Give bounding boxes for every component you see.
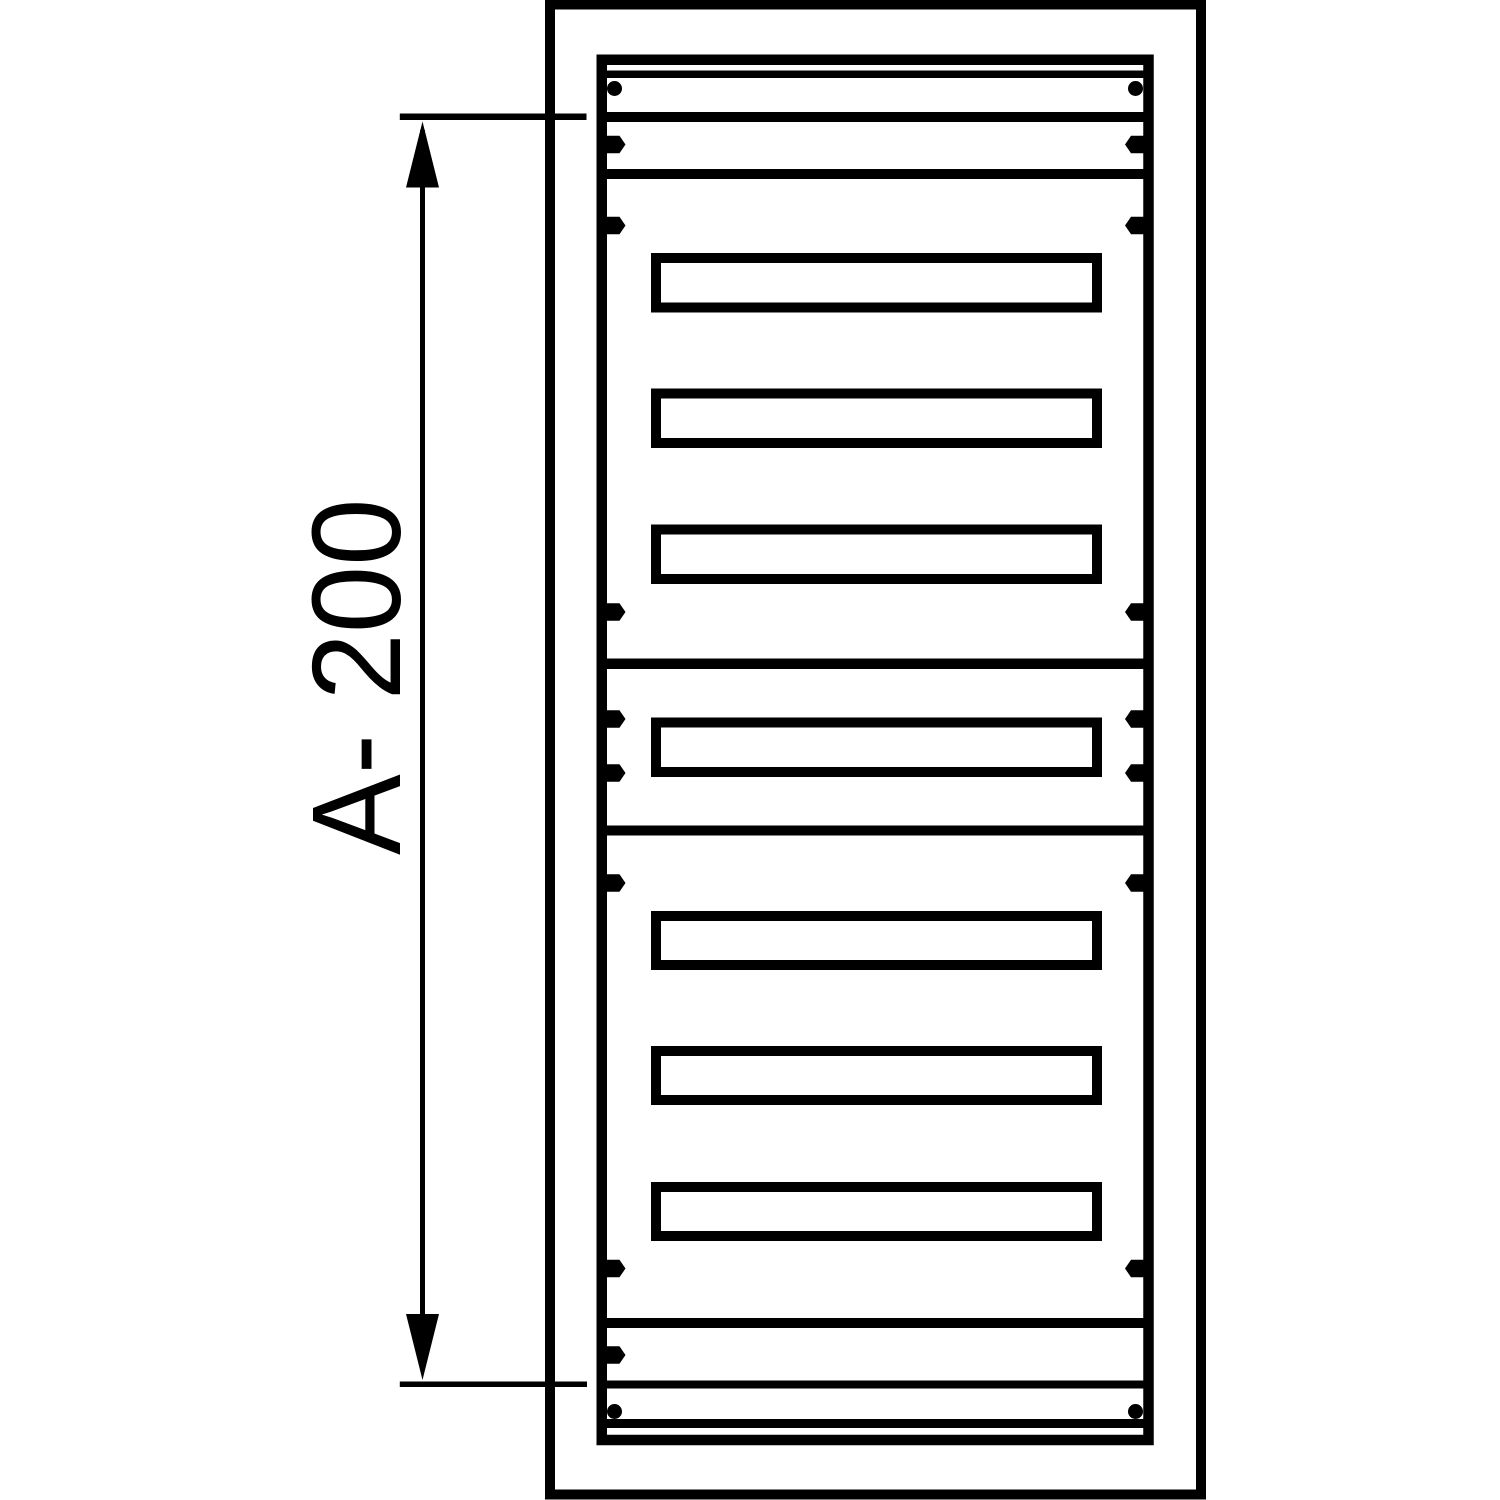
svg-text:A- 200: A- 200	[287, 499, 428, 855]
